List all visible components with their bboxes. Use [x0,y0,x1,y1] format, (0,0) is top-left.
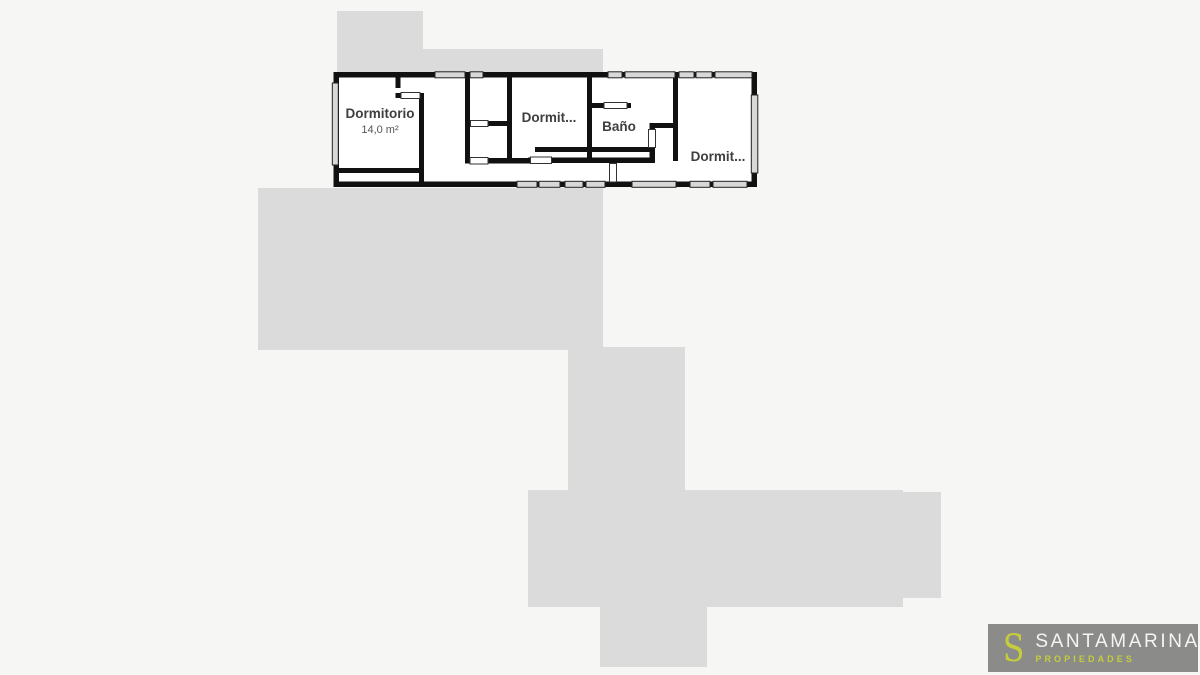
window-bottom-3 [565,181,583,187]
window-top-5 [679,72,694,78]
floor-plan: Dormitorio 14,0 m² Dormit... Baño Dormit… [325,60,765,195]
agency-brand-name: SANTAMARINA [1035,632,1199,652]
window-bottom-7 [713,181,747,187]
building-silhouette-lower-band [528,490,903,607]
wall-dormitorio2-bano-divider [587,72,592,163]
building-silhouette-mid-large [258,188,603,350]
agency-logo-text-block: SANTAMARINA PROPIEDADES [1035,632,1199,664]
window-bottom-4 [586,181,605,187]
agency-tagline: PROPIEDADES [1035,654,1199,664]
window-bottom-1 [517,181,537,187]
room-label-dormitorio-3: Dormit... [691,149,746,164]
window-top-7 [715,72,752,78]
door-closet-hall [470,158,488,165]
door-closet-divider [471,121,489,127]
door-hallway-exit [610,164,617,183]
window-bottom-6 [690,181,710,187]
door-dormitorio1 [401,93,420,99]
wall-closet-column-left [465,72,470,163]
window-left-wall [332,83,338,165]
door-bano-closet [604,103,627,109]
window-top-4 [625,72,675,78]
window-bottom-2 [539,181,560,187]
wall-entry-notch-stub [396,72,401,88]
floorplan-listing-image: Dormitorio 14,0 m² Dormit... Baño Dormit… [0,0,1200,675]
window-top-6 [696,72,712,78]
window-right-wall [751,95,758,173]
wall-dormitorio1-bottom [335,168,424,173]
window-top-2 [470,72,483,78]
window-top-1 [435,72,465,78]
building-silhouette-bottom-stem [600,607,707,667]
room-label-bano: Baño [602,119,636,134]
wall-duct-band-upper [535,147,655,152]
agency-logo-icon: S [1003,630,1025,667]
window-bottom-5 [632,181,676,187]
building-silhouette-lower-band-right [903,492,941,598]
door-bano [649,130,656,148]
agency-watermark: S SANTAMARINA PROPIEDADES [988,624,1198,672]
room-label-dormitorio-1: Dormitorio [346,106,415,121]
door-dormitorio2 [531,157,552,164]
window-top-3 [608,72,622,78]
wall-bano-dormitorio3-divider [673,72,678,161]
room-area-dormitorio-1: 14,0 m² [361,124,399,136]
room-label-dormitorio-2: Dormit... [522,110,577,125]
building-silhouette-stem-narrow [568,348,600,490]
wall-closet-column-right [507,72,512,163]
building-silhouette-stem-wide [600,347,685,490]
